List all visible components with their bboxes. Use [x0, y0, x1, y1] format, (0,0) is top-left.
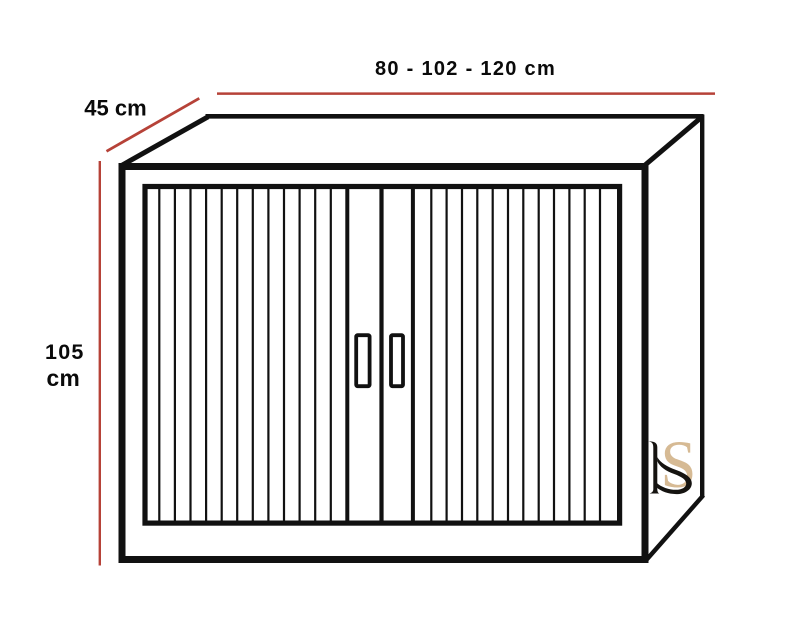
svg-text:105: 105: [45, 340, 84, 364]
svg-text:45 cm: 45 cm: [84, 96, 146, 121]
svg-text:cm: cm: [47, 365, 81, 391]
svg-text:80 - 102 - 120 cm: 80 - 102 - 120 cm: [375, 58, 556, 80]
